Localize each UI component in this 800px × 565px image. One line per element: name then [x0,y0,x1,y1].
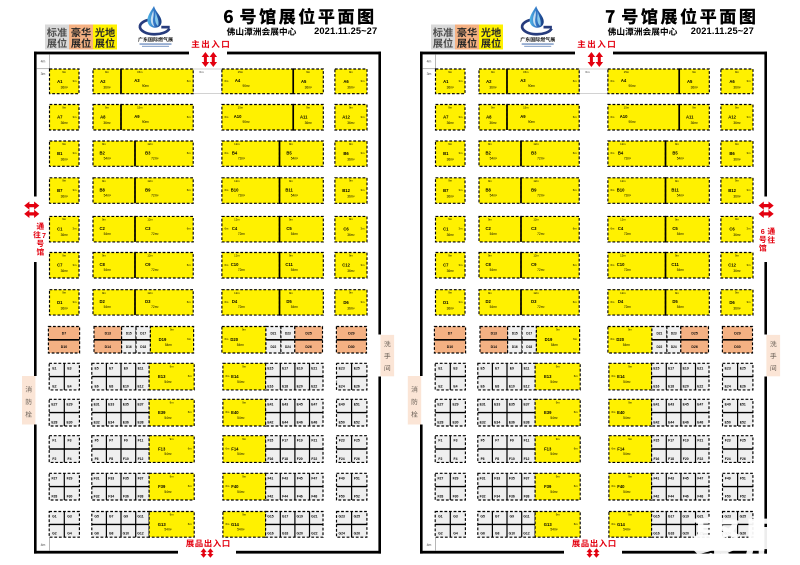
svg-text:C12: C12 [342,263,350,268]
svg-text:E10: E10 [123,384,129,388]
svg-text:F23: F23 [339,439,345,443]
svg-text:54m²: 54m² [623,380,630,384]
svg-text:D20: D20 [616,337,624,342]
svg-text:9m: 9m [675,142,680,146]
svg-text:54m²: 54m² [104,193,111,197]
svg-text:C11: C11 [671,262,679,267]
svg-text:72m²: 72m² [238,193,245,197]
svg-text:E45: E45 [683,402,689,406]
svg-text:9m: 9m [349,142,354,146]
svg-text:72m²: 72m² [624,268,631,272]
svg-text:36m²: 36m² [61,233,68,237]
svg-text:G14: G14 [231,522,240,527]
svg-text:G9: G9 [510,515,515,519]
svg-text:E11: E11 [138,366,144,370]
svg-text:54m²: 54m² [490,232,497,236]
svg-text:F28: F28 [437,494,443,498]
svg-text:G4: G4 [67,532,72,536]
svg-text:C2: C2 [100,226,106,231]
svg-text:B2: B2 [100,151,106,156]
svg-text:6m: 6m [573,188,578,192]
svg-text:3m: 3m [747,79,752,83]
svg-text:54m²: 54m² [677,268,684,272]
svg-text:C2: C2 [486,226,492,231]
svg-text:C1: C1 [443,227,449,232]
svg-text:G12: G12 [137,532,144,536]
svg-text:9m: 9m [349,105,354,109]
svg-text:E43: E43 [282,402,288,406]
svg-text:9m: 9m [242,513,247,517]
svg-text:F8: F8 [495,457,499,461]
svg-text:F43: F43 [282,476,288,480]
svg-text:E40: E40 [231,410,239,415]
svg-text:36m²: 36m² [347,269,354,273]
svg-text:B11: B11 [285,187,293,192]
svg-text:F52: F52 [354,494,360,498]
svg-text:E1: E1 [52,366,56,370]
svg-text:D25: D25 [691,332,697,336]
svg-text:9m: 9m [349,179,354,183]
svg-text:6m: 6m [611,522,616,526]
svg-text:G23: G23 [724,515,731,519]
svg-text:54m²: 54m² [237,490,244,494]
svg-text:B5: B5 [286,151,292,156]
svg-text:6: 6 [761,227,765,236]
svg-text:36m²: 36m² [61,269,68,273]
svg-text:36m²: 36m² [447,306,454,310]
svg-text:12m: 12m [147,218,153,222]
svg-text:36m²: 36m² [347,306,354,310]
svg-text:9m: 9m [675,218,680,222]
svg-text:E48: E48 [697,420,703,424]
svg-text:15m: 15m [523,106,529,110]
svg-text:6m: 6m [188,522,193,526]
svg-text:E27: E27 [437,402,443,406]
svg-text:6m: 6m [573,115,578,119]
svg-text:6m: 6m [574,484,579,488]
svg-text:E49: E49 [725,402,731,406]
svg-text:E40: E40 [617,410,625,415]
svg-text:B9: B9 [145,187,151,192]
svg-text:F31: F31 [94,476,100,480]
svg-text:E11: E11 [524,366,530,370]
svg-text:90m²: 90m² [142,120,149,124]
svg-text:7: 7 [42,231,46,240]
svg-text:12m: 12m [620,218,626,222]
svg-text:36m²: 36m² [733,269,740,273]
svg-text:36m²: 36m² [61,85,68,89]
svg-text:36m²: 36m² [733,121,740,125]
svg-text:12m: 12m [533,179,539,183]
svg-text:54m²: 54m² [623,343,630,347]
svg-text:6m: 6m [574,374,579,378]
svg-text:6m: 6m [573,300,578,304]
svg-text:E3: E3 [67,366,71,370]
svg-text:54m²: 54m² [490,157,497,161]
svg-text:A3: A3 [134,78,140,83]
svg-text:9m: 9m [448,217,453,221]
svg-text:9m: 9m [349,291,354,295]
svg-text:E19: E19 [297,366,303,370]
svg-text:F44: F44 [282,494,288,498]
svg-text:54m²: 54m² [677,157,684,161]
svg-text:F20: F20 [683,457,689,461]
svg-text:72m²: 72m² [238,232,245,236]
svg-text:G8: G8 [495,532,500,536]
svg-text:F28: F28 [51,494,57,498]
svg-text:C6: C6 [343,227,349,232]
svg-text:9m: 9m [628,437,633,441]
svg-text:F22: F22 [697,457,703,461]
svg-text:F2: F2 [438,457,442,461]
svg-text:D16: D16 [126,345,132,349]
svg-text:G10: G10 [509,532,516,536]
svg-text:54m²: 54m² [104,232,111,236]
svg-text:G11: G11 [137,515,143,519]
svg-text:E9: E9 [510,366,514,370]
svg-text:C5: C5 [672,226,678,231]
svg-text:D16: D16 [512,345,518,349]
svg-text:36m²: 36m² [347,121,354,125]
svg-text:54m²: 54m² [677,232,684,236]
svg-text:6m: 6m [188,410,193,414]
svg-text:E34: E34 [494,420,500,424]
svg-text:54m²: 54m² [550,528,557,532]
svg-text:D6: D6 [729,300,735,305]
svg-text:E22: E22 [311,384,317,388]
svg-text:36m²: 36m² [447,195,454,199]
svg-text:C3: C3 [145,226,151,231]
svg-text:9m: 9m [242,365,247,369]
svg-text:E9: E9 [124,366,128,370]
svg-text:D10: D10 [447,345,453,349]
svg-text:D23: D23 [285,332,291,336]
svg-text:15m: 15m [238,70,244,74]
svg-text:54m²: 54m² [164,452,171,456]
svg-text:3m: 3m [73,227,78,231]
svg-text:D4: D4 [618,299,624,304]
svg-text:F11: F11 [524,439,530,443]
svg-text:9m: 9m [735,142,740,146]
svg-text:G21: G21 [311,515,318,519]
svg-text:6m: 6m [224,263,229,267]
svg-text:A11: A11 [300,115,308,120]
svg-text:G2: G2 [52,532,57,536]
svg-text:E35: E35 [123,402,129,406]
svg-text:6m: 6m [225,447,230,451]
svg-text:36m²: 36m² [691,85,698,89]
svg-text:B9: B9 [531,187,537,192]
svg-text:E31: E31 [480,402,486,406]
svg-text:9m: 9m [170,513,175,517]
svg-text:9m: 9m [735,179,740,183]
svg-text:B12: B12 [728,188,736,193]
svg-text:36m²: 36m² [733,158,740,162]
svg-text:F41: F41 [653,476,659,480]
svg-text:E26: E26 [740,384,746,388]
svg-text:G3: G3 [453,515,458,519]
svg-text:E29: E29 [66,402,72,406]
svg-text:E29: E29 [452,402,458,406]
svg-text:G20: G20 [682,532,689,536]
svg-text:B7: B7 [443,188,449,193]
svg-text:E42: E42 [653,420,659,424]
svg-text:G7: G7 [109,515,114,519]
svg-text:E14: E14 [231,374,239,379]
svg-text:F48: F48 [311,494,317,498]
svg-text:9m: 9m [675,254,680,258]
svg-text:9m: 9m [448,70,453,74]
svg-text:9m: 9m [491,105,496,109]
svg-text:6m: 6m [611,484,616,488]
svg-text:A10: A10 [620,114,628,119]
svg-text:B3: B3 [531,151,537,156]
svg-text:G18: G18 [282,532,289,536]
svg-text:G16: G16 [653,532,660,536]
svg-text:54m²: 54m² [237,416,244,420]
svg-text:B4: B4 [618,151,624,156]
svg-text:E8: E8 [109,384,113,388]
svg-text:36m²: 36m² [347,158,354,162]
svg-text:9m: 9m [675,291,680,295]
svg-text:36m²: 36m² [61,121,68,125]
svg-text:4m: 4m [427,543,432,547]
svg-text:12m: 12m [620,291,626,295]
svg-text:C7: C7 [443,263,449,268]
svg-text:D6: D6 [343,300,349,305]
svg-text:F50: F50 [339,494,345,498]
svg-text:G21: G21 [697,515,704,519]
svg-text:F38: F38 [138,494,144,498]
svg-text:36m²: 36m² [733,306,740,310]
svg-text:6m: 6m [573,337,578,341]
svg-text:C9: C9 [145,262,151,267]
svg-text:3m: 3m [747,115,752,119]
svg-text:9m: 9m [735,105,740,109]
svg-text:F46: F46 [683,494,689,498]
svg-text:9m: 9m [170,401,175,405]
svg-text:54m²: 54m² [550,380,557,384]
svg-text:E6: E6 [95,384,99,388]
svg-text:F47: F47 [311,476,317,480]
svg-text:6m: 6m [224,79,229,83]
svg-text:E18: E18 [282,384,288,388]
svg-text:B8: B8 [486,187,492,192]
svg-text:G23: G23 [338,515,345,519]
svg-text:E43: E43 [668,402,674,406]
svg-text:6m: 6m [573,79,578,83]
svg-text:F14: F14 [231,447,239,452]
svg-text:9m: 9m [735,70,740,74]
svg-text:G3: G3 [67,515,72,519]
svg-text:D22: D22 [270,345,276,349]
svg-text:D29: D29 [348,332,354,336]
svg-text:6m: 6m [611,374,616,378]
svg-text:9m: 9m [692,105,697,109]
svg-text:E51: E51 [740,402,746,406]
svg-text:F26: F26 [740,457,746,461]
svg-text:36m²: 36m² [61,158,68,162]
svg-text:36m²: 36m² [447,121,454,125]
svg-text:9m: 9m [488,179,493,183]
svg-text:F37: F37 [138,476,144,480]
svg-text:A7: A7 [443,115,449,120]
svg-text:F16: F16 [653,457,659,461]
svg-text:G8: G8 [109,532,114,536]
svg-text:90m²: 90m² [528,84,535,88]
svg-text:E25: E25 [740,366,746,370]
svg-text:D22: D22 [656,345,662,349]
svg-text:6m: 6m [610,300,615,304]
svg-text:A11: A11 [686,115,694,120]
svg-text:6m: 6m [573,227,578,231]
svg-text:A6: A6 [343,79,349,84]
svg-text:C4: C4 [618,226,624,231]
svg-text:D1: D1 [443,300,449,305]
svg-text:E14: E14 [617,374,625,379]
svg-text:9m: 9m [242,401,247,405]
svg-text:E2: E2 [52,384,56,388]
svg-text:54m²: 54m² [104,157,111,161]
svg-text:9m: 9m [289,254,294,258]
svg-text:E51: E51 [354,402,360,406]
svg-text:36m²: 36m² [61,306,68,310]
svg-text:C10: C10 [617,262,625,267]
svg-text:9m: 9m [102,179,107,183]
svg-text:D17: D17 [140,332,146,336]
svg-text:D18: D18 [526,345,532,349]
svg-text:9m: 9m [289,291,294,295]
svg-text:E32: E32 [94,420,100,424]
svg-text:15m: 15m [624,70,630,74]
svg-text:E22: E22 [697,384,703,388]
svg-text:12m: 12m [147,179,153,183]
svg-text:6m: 6m [610,115,615,119]
svg-text:54m²: 54m² [104,305,111,309]
svg-text:6m: 6m [188,374,193,378]
svg-text:E10: E10 [509,384,515,388]
svg-text:54m²: 54m² [291,193,298,197]
svg-text:36m²: 36m² [733,85,740,89]
svg-text:F42: F42 [267,494,273,498]
svg-text:C7: C7 [57,263,63,268]
svg-text:3m: 3m [459,115,464,119]
svg-text:D15: D15 [512,332,518,336]
svg-text:F29: F29 [67,476,73,480]
svg-text:9m: 9m [448,253,453,257]
svg-text:54m²: 54m² [164,490,171,494]
svg-text:6m: 6m [610,263,615,267]
svg-text:F48: F48 [697,494,703,498]
svg-text:12m: 12m [234,218,240,222]
svg-text:F1: F1 [438,439,442,443]
svg-text:6m: 6m [188,447,193,451]
svg-text:E13: E13 [544,374,552,379]
svg-text:E41: E41 [267,402,273,406]
svg-text:54m²: 54m² [291,305,298,309]
svg-text:F9: F9 [124,439,128,443]
svg-text:6m: 6m [225,522,230,526]
svg-text:72m²: 72m² [624,157,631,161]
svg-text:E44: E44 [282,420,288,424]
svg-text:E34: E34 [108,420,114,424]
svg-text:E46: E46 [297,420,303,424]
svg-text:9m: 9m [62,217,67,221]
svg-text:B6: B6 [343,151,349,156]
svg-text:G5: G5 [480,515,485,519]
svg-text:36m²: 36m² [347,233,354,237]
svg-text:F10: F10 [123,457,129,461]
svg-text:9m: 9m [628,513,633,517]
svg-text:F45: F45 [297,476,303,480]
svg-text:72m²: 72m² [151,193,158,197]
svg-text:3m: 3m [361,115,366,119]
svg-text:54m²: 54m² [164,416,171,420]
svg-text:6m: 6m [225,410,230,414]
svg-text:6m: 6m [585,70,590,74]
svg-text:F12: F12 [524,457,530,461]
svg-text:B3: B3 [145,151,151,156]
svg-text:9m: 9m [102,291,107,295]
svg-text:D30: D30 [348,345,354,349]
svg-text:G19: G19 [682,515,689,519]
svg-text:F18: F18 [282,457,288,461]
svg-text:9m: 9m [735,291,740,295]
svg-text:F21: F21 [311,439,317,443]
svg-text:F4: F4 [454,457,458,461]
svg-text:F27: F27 [51,476,57,480]
svg-text:6m: 6m [187,188,192,192]
svg-text:54m²: 54m² [291,232,298,236]
svg-text:D15: D15 [126,332,132,336]
svg-text:D10: D10 [61,345,67,349]
svg-text:A1: A1 [57,79,63,84]
svg-text:A2: A2 [100,79,106,84]
svg-text:54m²: 54m² [550,452,557,456]
svg-text:F8: F8 [109,457,113,461]
svg-text:F24: F24 [725,457,731,461]
svg-text:D23: D23 [671,332,677,336]
svg-text:9m: 9m [448,291,453,295]
svg-text:G26: G26 [740,532,747,536]
svg-text:6m: 6m [187,337,192,341]
svg-text:9m: 9m [105,105,110,109]
svg-text:9m: 9m [306,70,311,74]
svg-text:F16: F16 [267,457,273,461]
svg-text:F35: F35 [509,476,515,480]
svg-text:G25: G25 [740,515,747,519]
svg-text:F47: F47 [697,476,703,480]
svg-text:E20: E20 [297,384,303,388]
svg-text:9m: 9m [170,328,175,332]
svg-text:F42: F42 [653,494,659,498]
svg-text:A12: A12 [342,115,350,120]
svg-text:G12: G12 [523,532,530,536]
svg-text:F6: F6 [95,457,99,461]
svg-text:F34: F34 [494,494,500,498]
svg-text:6m: 6m [199,70,204,74]
svg-text:F25: F25 [740,439,746,443]
svg-text:F15: F15 [653,439,659,443]
svg-text:E48: E48 [311,420,317,424]
svg-text:G20: G20 [296,532,303,536]
svg-text:54m²: 54m² [104,268,111,272]
svg-text:36m²: 36m² [447,269,454,273]
svg-text:F1: F1 [52,439,56,443]
svg-text:D25: D25 [305,332,311,336]
svg-text:F21: F21 [697,439,703,443]
svg-text:54m²: 54m² [165,343,172,347]
